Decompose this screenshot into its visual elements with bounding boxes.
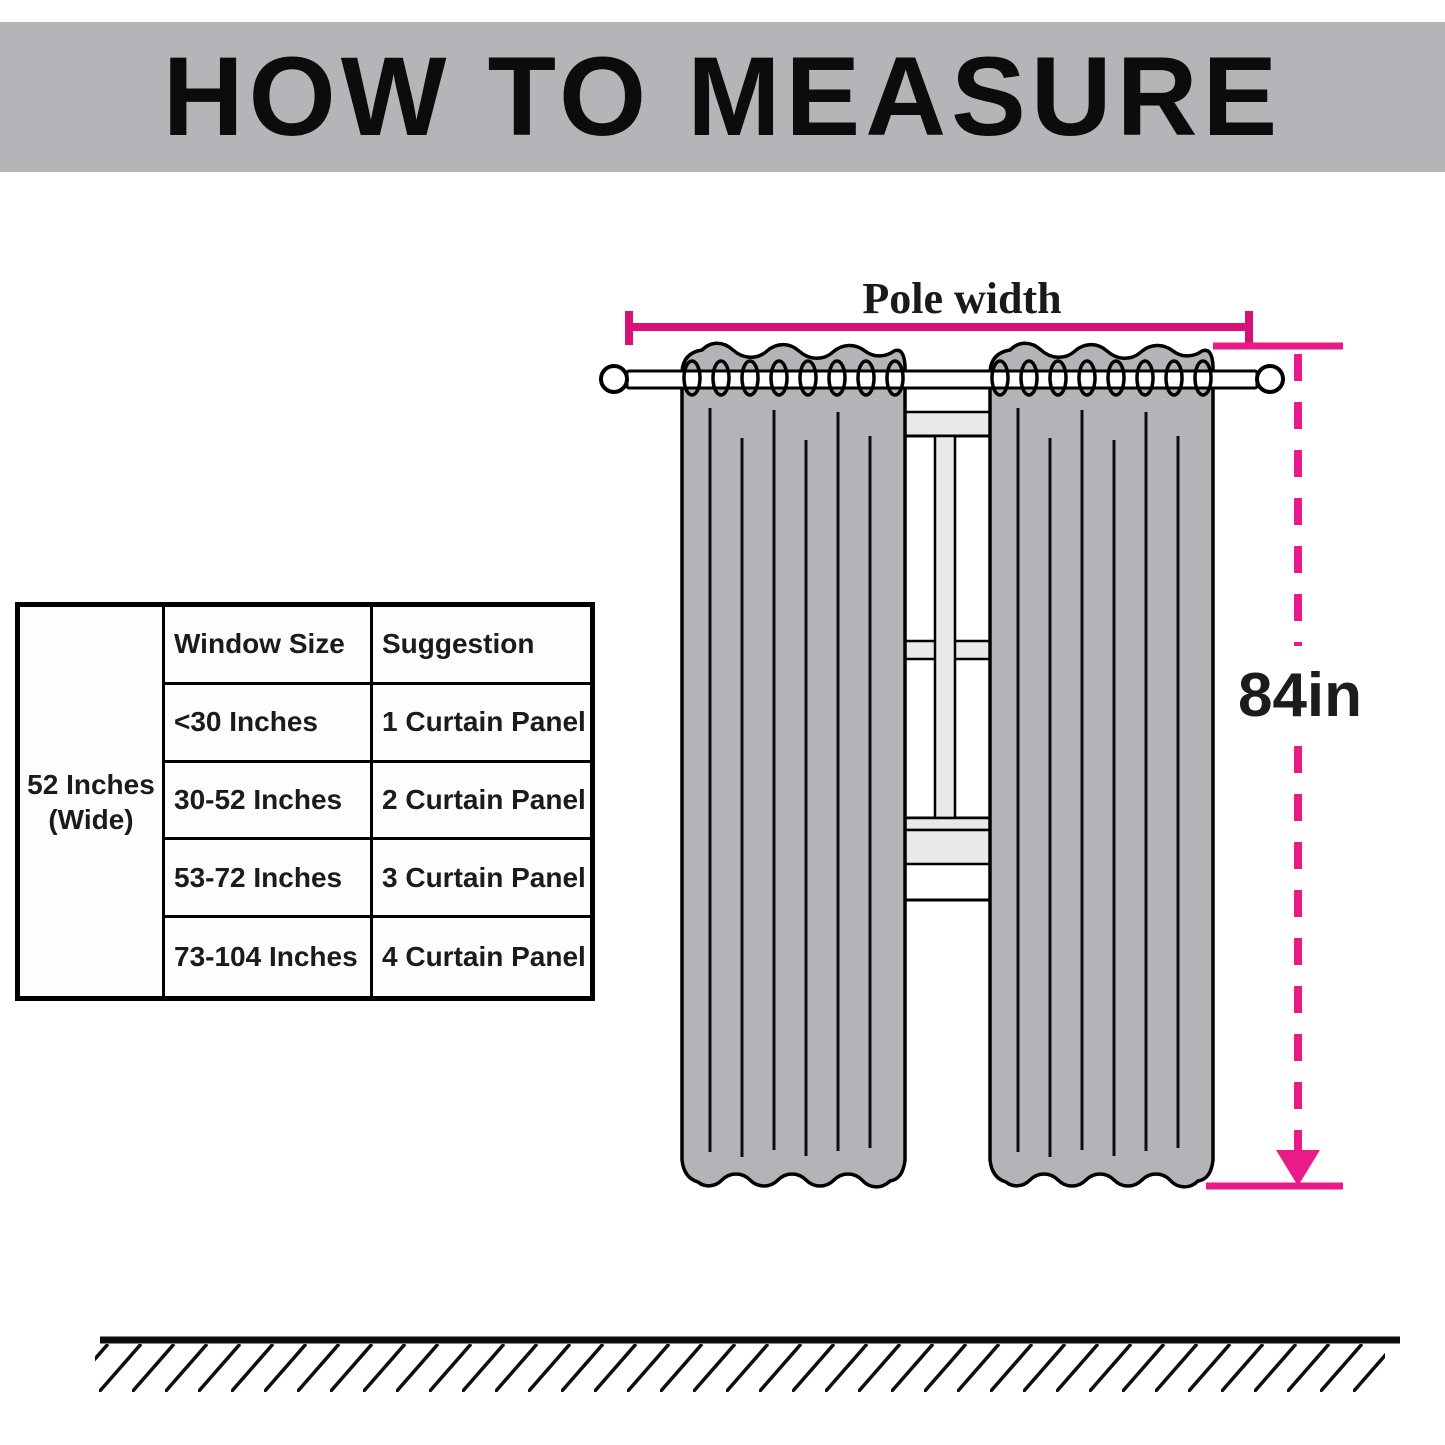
pole-width-label: Pole width	[862, 274, 1061, 323]
side-header-line1: 52 Inches	[27, 767, 155, 802]
drop-length-label: 84in	[1238, 661, 1362, 730]
window	[898, 388, 997, 900]
drop-length-measure	[1206, 346, 1343, 1186]
table-cell-suggestion: 4 Curtain Panel	[373, 918, 590, 996]
column-header-window-size: Window Size	[165, 607, 373, 685]
window-sill	[900, 830, 995, 864]
ground-hatch	[95, 1344, 1385, 1392]
rod-finial-left	[601, 366, 627, 392]
column-header-suggestion: Suggestion	[373, 607, 590, 685]
drop-arrow-icon	[1276, 1150, 1320, 1186]
floor-ground	[95, 1340, 1400, 1392]
side-header-line2: (Wide)	[48, 802, 133, 837]
curtain-panel-left	[682, 343, 905, 1187]
table-cell-window: <30 Inches	[165, 685, 373, 763]
table-cell-window: 73-104 Inches	[165, 918, 373, 996]
table-cell-suggestion: 3 Curtain Panel	[373, 840, 590, 918]
table-cell-window: 53-72 Inches	[165, 840, 373, 918]
table-cell-suggestion: 2 Curtain Panel	[373, 763, 590, 841]
window-mullion	[935, 436, 955, 818]
rod-finial-right	[1257, 366, 1283, 392]
window-head-bar	[902, 412, 993, 436]
table-cell-window: 30-52 Inches	[165, 763, 373, 841]
table-cell-suggestion: 1 Curtain Panel	[373, 685, 590, 763]
table-side-header: 52 Inches (Wide)	[20, 607, 165, 996]
curtain-panel-right	[990, 343, 1213, 1187]
infographic-canvas: HOW TO MEASURE	[0, 0, 1445, 1445]
panel-suggestion-table: 52 Inches (Wide) Window Size Suggestion …	[15, 602, 595, 1001]
